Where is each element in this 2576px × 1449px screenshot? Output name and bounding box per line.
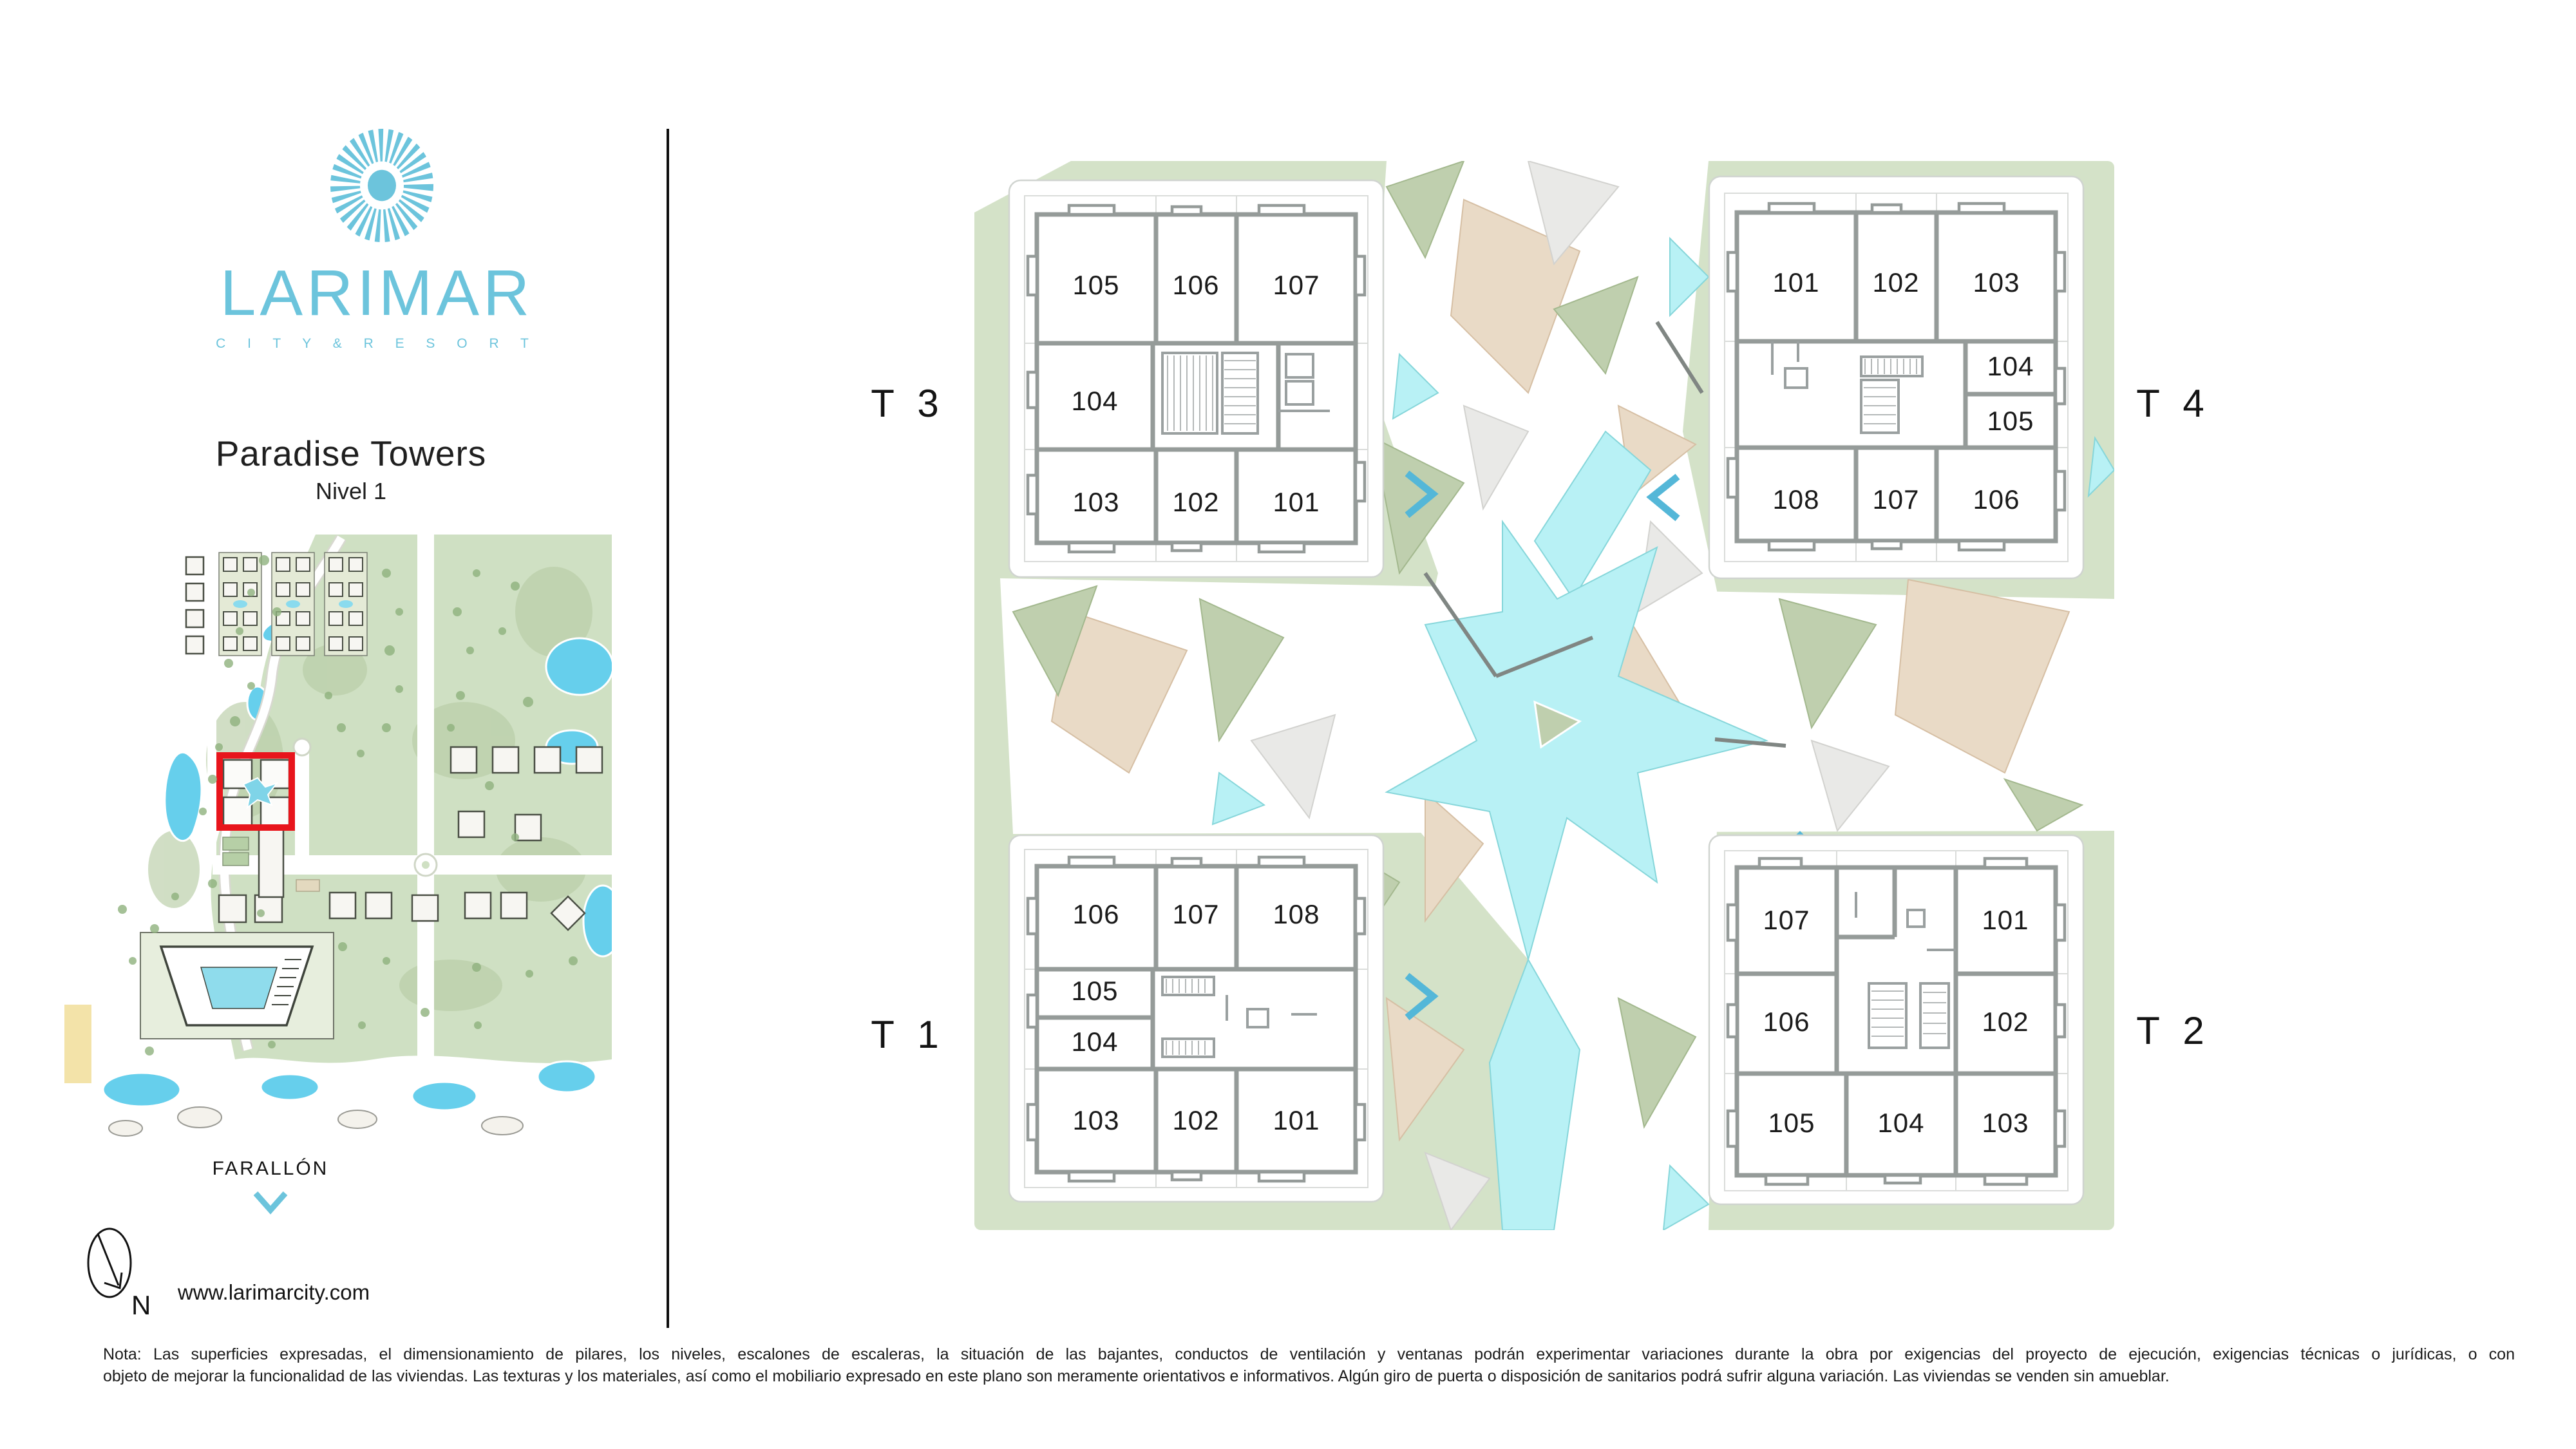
unit-number: 101: [1273, 487, 1320, 517]
unit-number: 104: [1071, 386, 1118, 416]
disclaimer-line-1: Nota: Las superficies expresadas, el dim…: [103, 1343, 2515, 1365]
tower-label-t1: T 1: [850, 1012, 966, 1057]
site-minimap: [64, 535, 612, 1146]
unit-number: 104: [1071, 1027, 1118, 1057]
page-title: Paradise Towers: [58, 433, 644, 474]
tower-plan-t4: 101 102 103 104 105 108 107 106: [1708, 175, 2085, 580]
unit-number: 103: [1072, 487, 1119, 517]
unit-number: 108: [1772, 484, 1819, 515]
unit-number: 102: [1982, 1007, 2029, 1037]
logo-sun-icon: [321, 122, 443, 251]
page: LARIMAR C I T Y & R E S O R T Paradise T…: [0, 0, 2576, 1449]
tower-label-t2: T 2: [2116, 1009, 2231, 1053]
tower-plan-t3: 105 106 107 104 103 102 101: [1008, 179, 1385, 578]
compass-icon: N: [84, 1222, 161, 1322]
disclaimer-note: Nota: Las superficies expresadas, el dim…: [103, 1343, 2515, 1387]
website-link[interactable]: www.larimarcity.com: [129, 1280, 419, 1305]
unit-number: 105: [1987, 406, 2034, 436]
unit-number: 106: [1172, 270, 1219, 300]
brand-tagline: C I T Y & R E S O R T: [90, 336, 663, 352]
unit-number: 101: [1982, 905, 2029, 935]
unit-number: 102: [1172, 1105, 1219, 1135]
unit-number: 101: [1772, 267, 1819, 298]
area-label: FARALLÓN: [174, 1158, 367, 1180]
tower-plan-t2: 107 101 106 102 105 104 103: [1708, 834, 2085, 1206]
unit-number: 107: [1273, 270, 1320, 300]
unit-number: 105: [1768, 1108, 1815, 1138]
brand-name: LARIMAR: [90, 256, 663, 330]
unit-number: 103: [1072, 1105, 1119, 1135]
page-subtitle: Nivel 1: [58, 478, 644, 505]
unit-number: 102: [1172, 487, 1219, 517]
tower-label-t4: T 4: [2116, 381, 2231, 426]
unit-number: 107: [1872, 484, 1919, 515]
unit-number: 102: [1872, 267, 1919, 298]
unit-number: 103: [1982, 1108, 2029, 1138]
unit-number: 106: [1072, 899, 1119, 929]
minimap-resort-building: [140, 933, 334, 1039]
tower-plan-t1: 106 107 108 105 104 103 102 101: [1008, 834, 1385, 1203]
unit-number: 101: [1273, 1105, 1320, 1135]
disclaimer-line-2: objeto de mejorar la funcionalidad de la…: [103, 1365, 2515, 1387]
unit-number: 106: [1763, 1007, 1810, 1037]
panel-divider: [667, 129, 669, 1328]
tower-label-t3: T 3: [850, 381, 966, 426]
unit-number: 107: [1763, 905, 1810, 935]
minimap-yellow-strip: [64, 1005, 91, 1083]
minimap-estates: [219, 553, 367, 656]
unit-number: 104: [1987, 351, 2034, 381]
unit-number: 105: [1072, 270, 1119, 300]
unit-number: 104: [1877, 1108, 1924, 1138]
unit-number: 107: [1172, 899, 1219, 929]
unit-number: 108: [1273, 899, 1320, 929]
unit-number: 105: [1071, 976, 1118, 1006]
unit-number: 106: [1973, 484, 2020, 515]
area-direction-chevron-icon: [252, 1190, 289, 1215]
unit-number: 103: [1973, 267, 2020, 298]
